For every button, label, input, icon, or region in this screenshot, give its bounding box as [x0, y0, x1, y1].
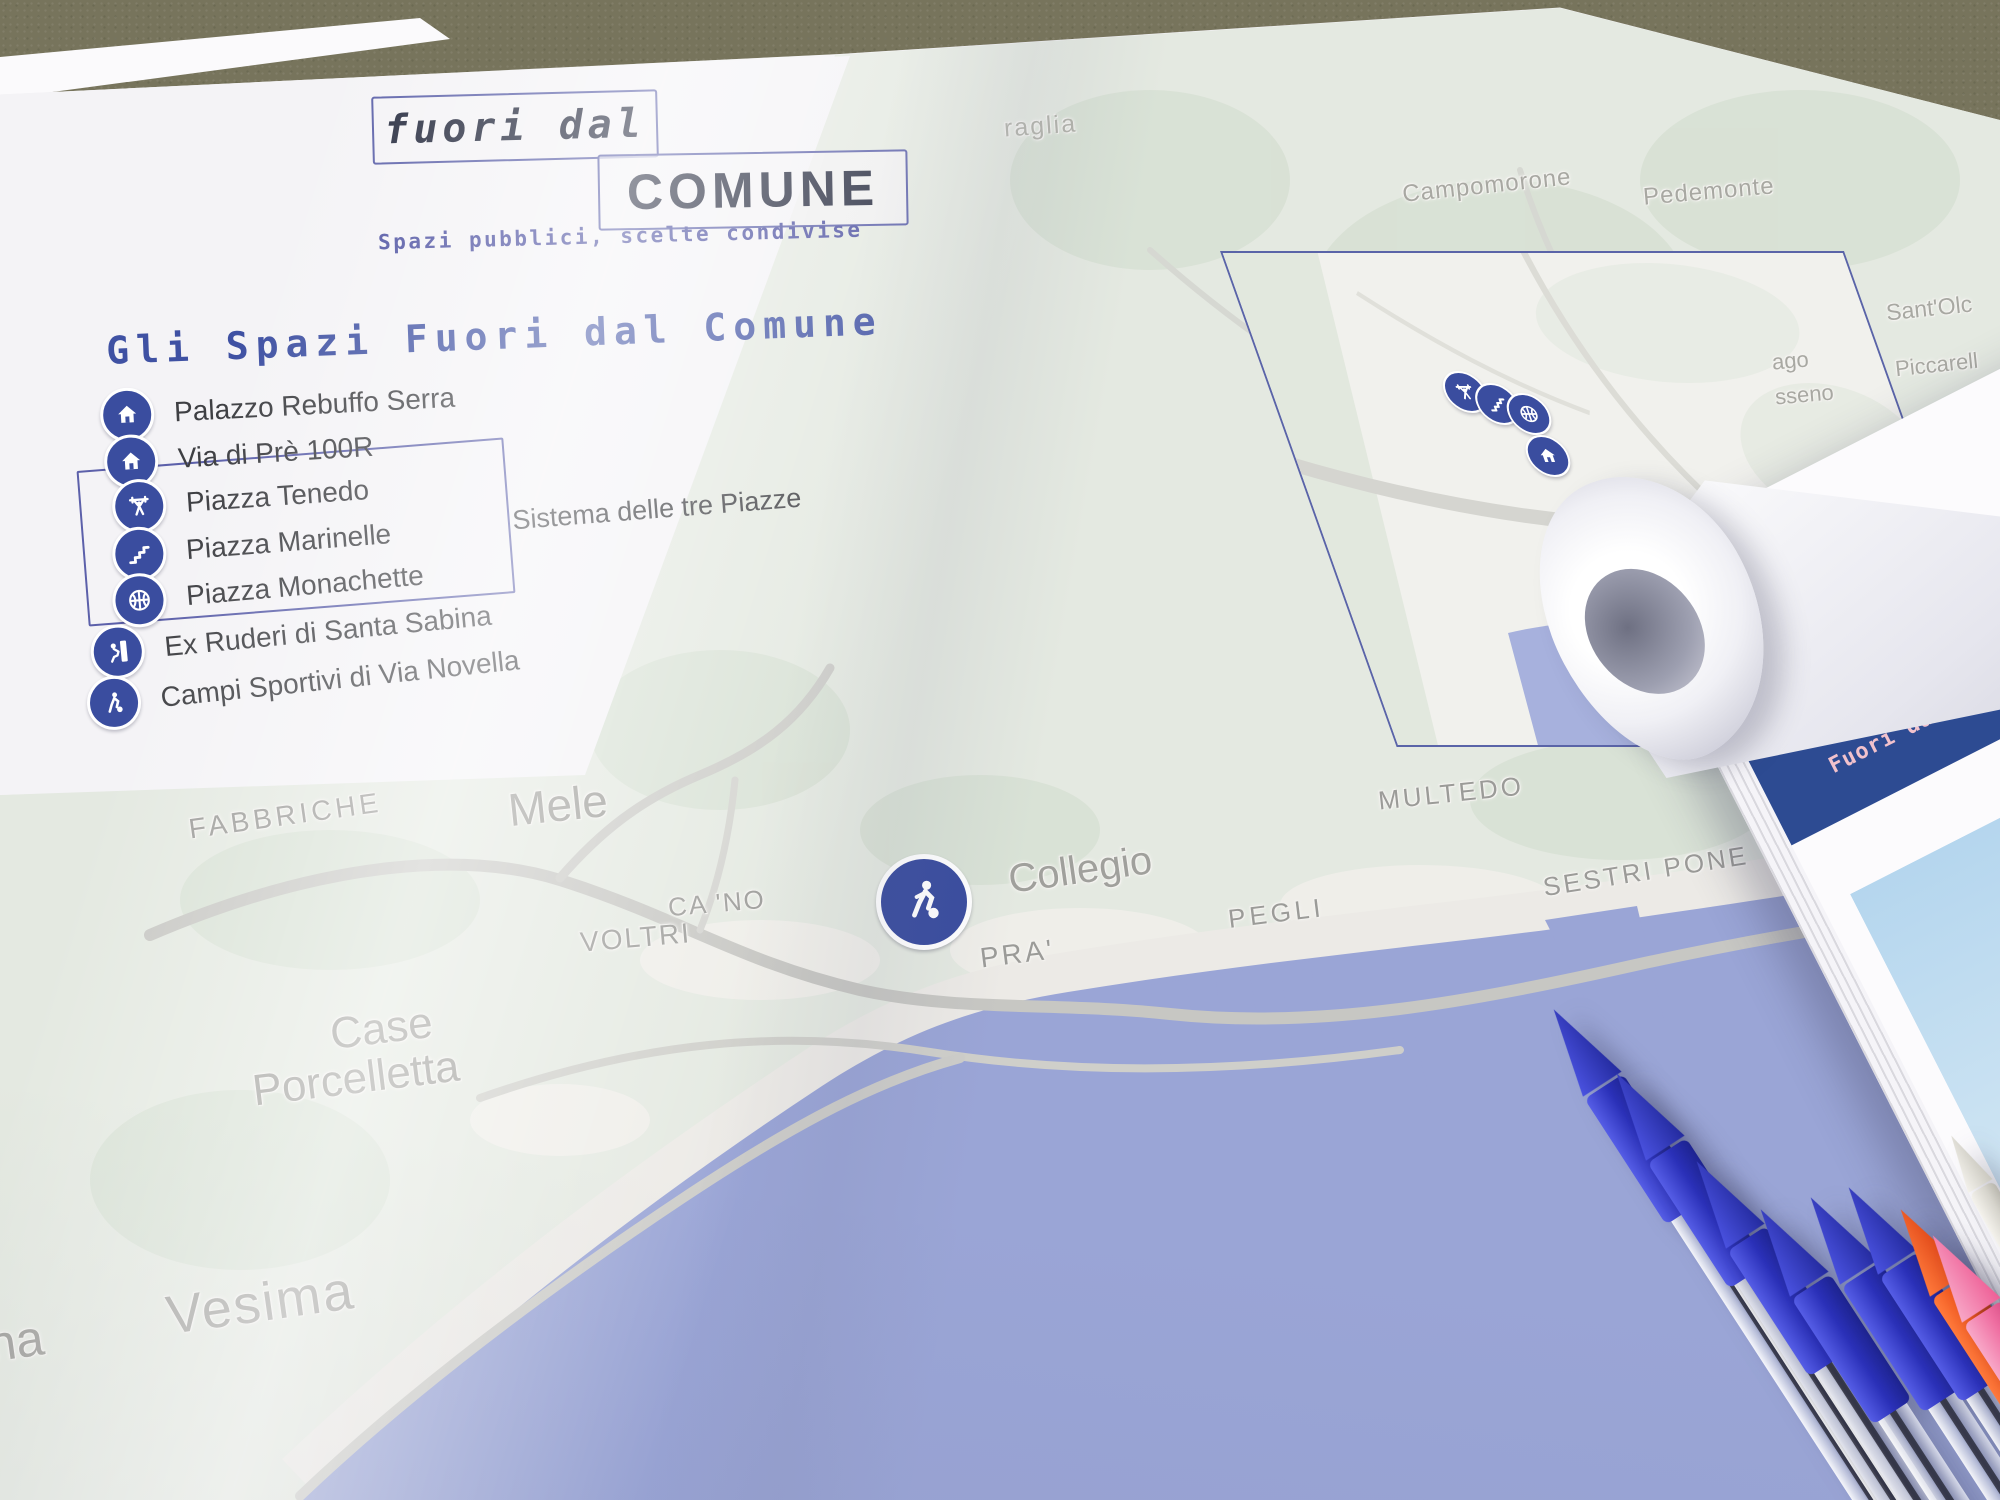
logo-text-fuori-dal: fuori dal [384, 101, 647, 154]
legend-label: Palazzo Rebuffo Serra [173, 382, 455, 429]
logo-text-comune: COMUNE [626, 159, 879, 221]
map-label-ago: ago [1771, 346, 1810, 375]
soccer-icon [898, 874, 950, 931]
map-label-sseno: sseno [1774, 379, 1835, 410]
map-label-raglia: raglia [1003, 109, 1078, 143]
soccer-icon [84, 673, 143, 732]
soccer-field-marker [876, 854, 972, 950]
photo-of-map-poster-on-table: raglia Campomorone Pedemonte Sant'Olc ag… [0, 0, 2000, 1500]
map-label-mele: Mele [505, 773, 610, 837]
curl-shadow [1560, 545, 1729, 717]
map-label-na: na [0, 1308, 47, 1373]
